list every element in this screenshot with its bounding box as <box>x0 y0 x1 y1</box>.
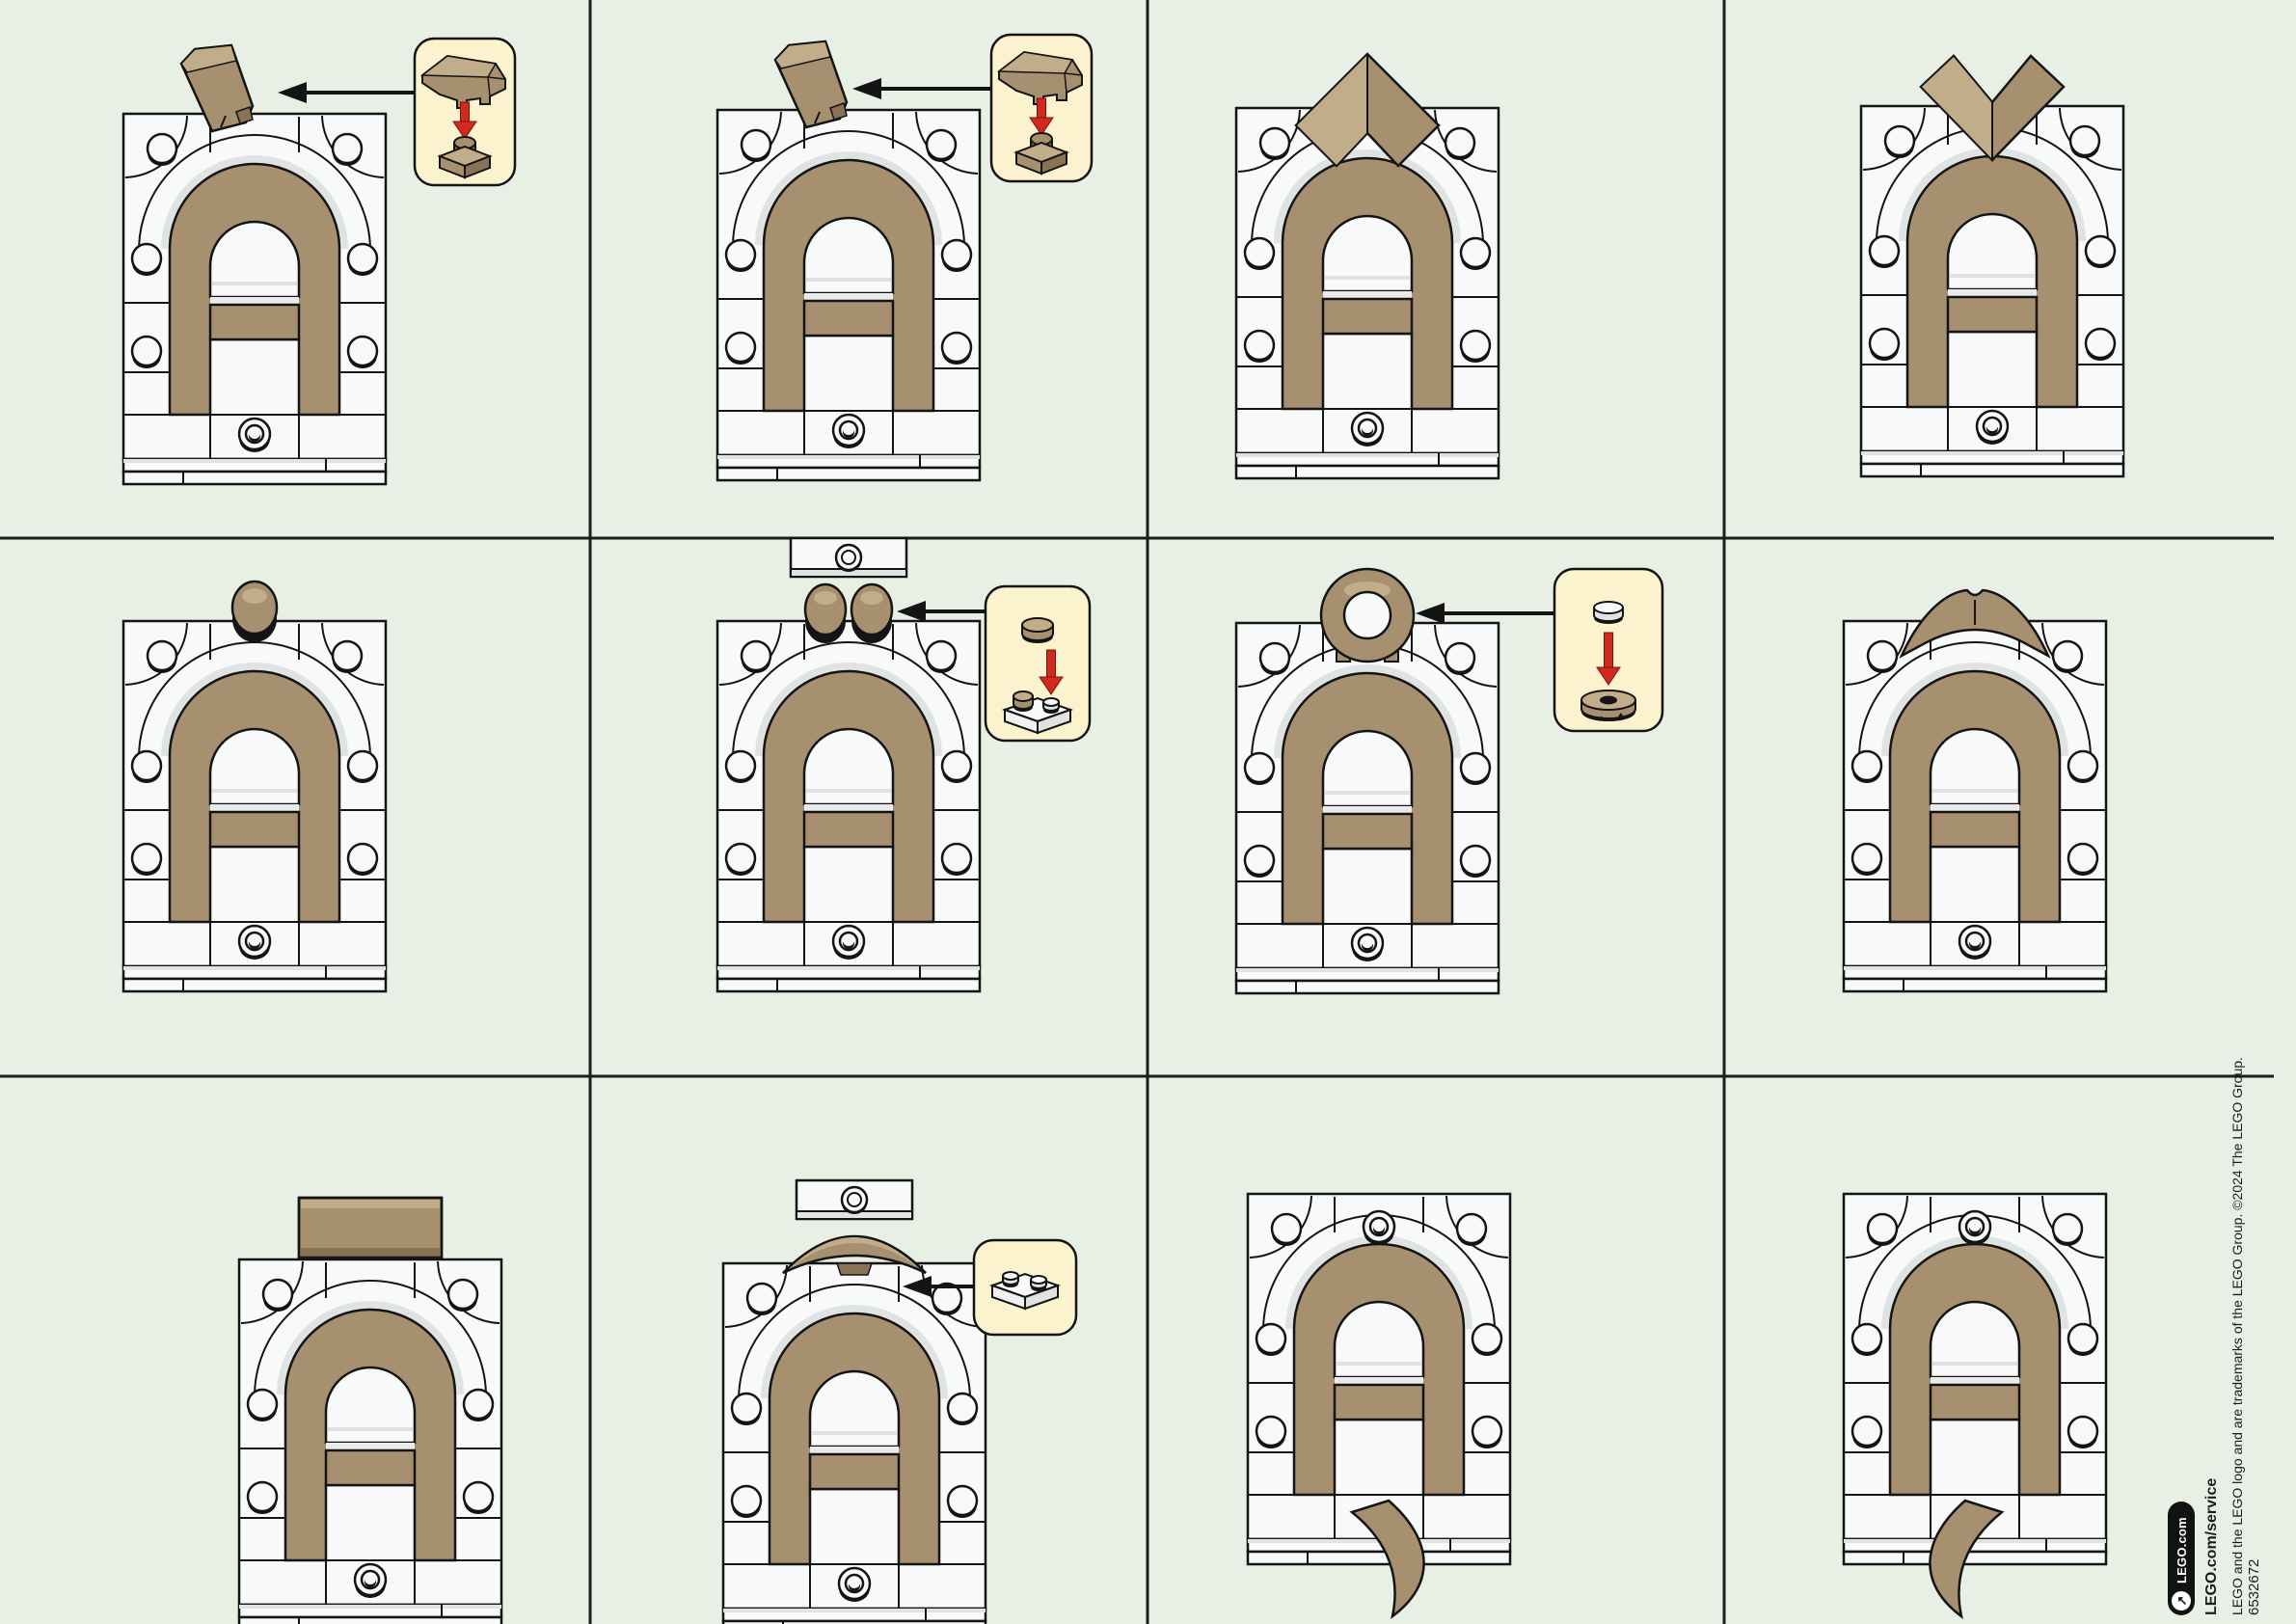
white-plate-1x2-floating <box>791 538 906 577</box>
pin-hole-ring <box>1364 1211 1394 1245</box>
footer-legal-block: ↗ LEGO.com LEGO.com/service LEGO and the… <box>2168 1037 2293 1615</box>
arrow-up-right-icon: ↗ <box>2172 1591 2191 1610</box>
cell-r1c3 <box>1236 54 1499 478</box>
lego-arch-model <box>1844 1194 2106 1616</box>
cell-r3c1 <box>239 1198 501 1624</box>
pin-hole-ring <box>1352 928 1383 961</box>
pin-hole-ring <box>1959 1211 1990 1245</box>
callout-box <box>974 1240 1076 1335</box>
pin-hole-ring <box>239 926 270 960</box>
tan-round-plate-2x2-piece <box>1581 690 1635 721</box>
instruction-sheet-canvas <box>0 0 2296 1624</box>
cell-r2c4 <box>1844 590 2106 991</box>
cell-r3c4 <box>1844 1194 2106 1616</box>
cell-r3c3 <box>1248 1194 1510 1616</box>
lego-arch-model <box>1844 590 2106 991</box>
callout-box <box>991 35 1092 181</box>
lego-arch-model <box>1861 56 2123 476</box>
callout-box <box>986 586 1090 741</box>
lego-com-pill: ↗ LEGO.com <box>2168 1502 2195 1615</box>
lego-arch-model <box>1236 54 1499 478</box>
pin-hole-ring <box>1959 926 1990 960</box>
tan-ring-plate-piece <box>1321 569 1414 662</box>
pin-hole-ring <box>239 419 270 452</box>
pill-label: LEGO.com <box>2174 1517 2189 1583</box>
callout-box <box>415 39 515 185</box>
instruction-page: ↗ LEGO.com LEGO.com/service LEGO and the… <box>0 0 2296 1624</box>
cell-r2c1 <box>123 582 386 991</box>
white-round-tile-1x1-piece <box>1594 602 1623 624</box>
pin-hole-ring <box>833 926 864 960</box>
item-number: 6532672 <box>2246 1037 2262 1615</box>
tan-round-plate-1x1-piece <box>1022 618 1053 643</box>
pin-hole-ring <box>355 1564 386 1598</box>
tan-brick-2x3-piece <box>299 1198 442 1258</box>
callout-box <box>1554 569 1662 731</box>
white-plate-1x2-floating <box>797 1180 912 1219</box>
lego-arch-model <box>1236 569 1499 993</box>
pin-hole-ring <box>833 415 864 448</box>
legal-text: LEGO and the LEGO logo and are trademark… <box>2229 1037 2245 1615</box>
cell-r1c4 <box>1861 56 2123 476</box>
service-text: LEGO.com/service <box>2203 1037 2221 1615</box>
tan-round-stud-piece <box>232 582 277 642</box>
lego-arch-model <box>1248 1194 1510 1616</box>
pin-hole-ring <box>1352 413 1383 447</box>
pin-hole-ring <box>1977 411 2008 445</box>
pin-hole-ring <box>839 1568 870 1602</box>
lego-arch-model <box>239 1198 501 1624</box>
lego-arch-model <box>123 582 386 991</box>
